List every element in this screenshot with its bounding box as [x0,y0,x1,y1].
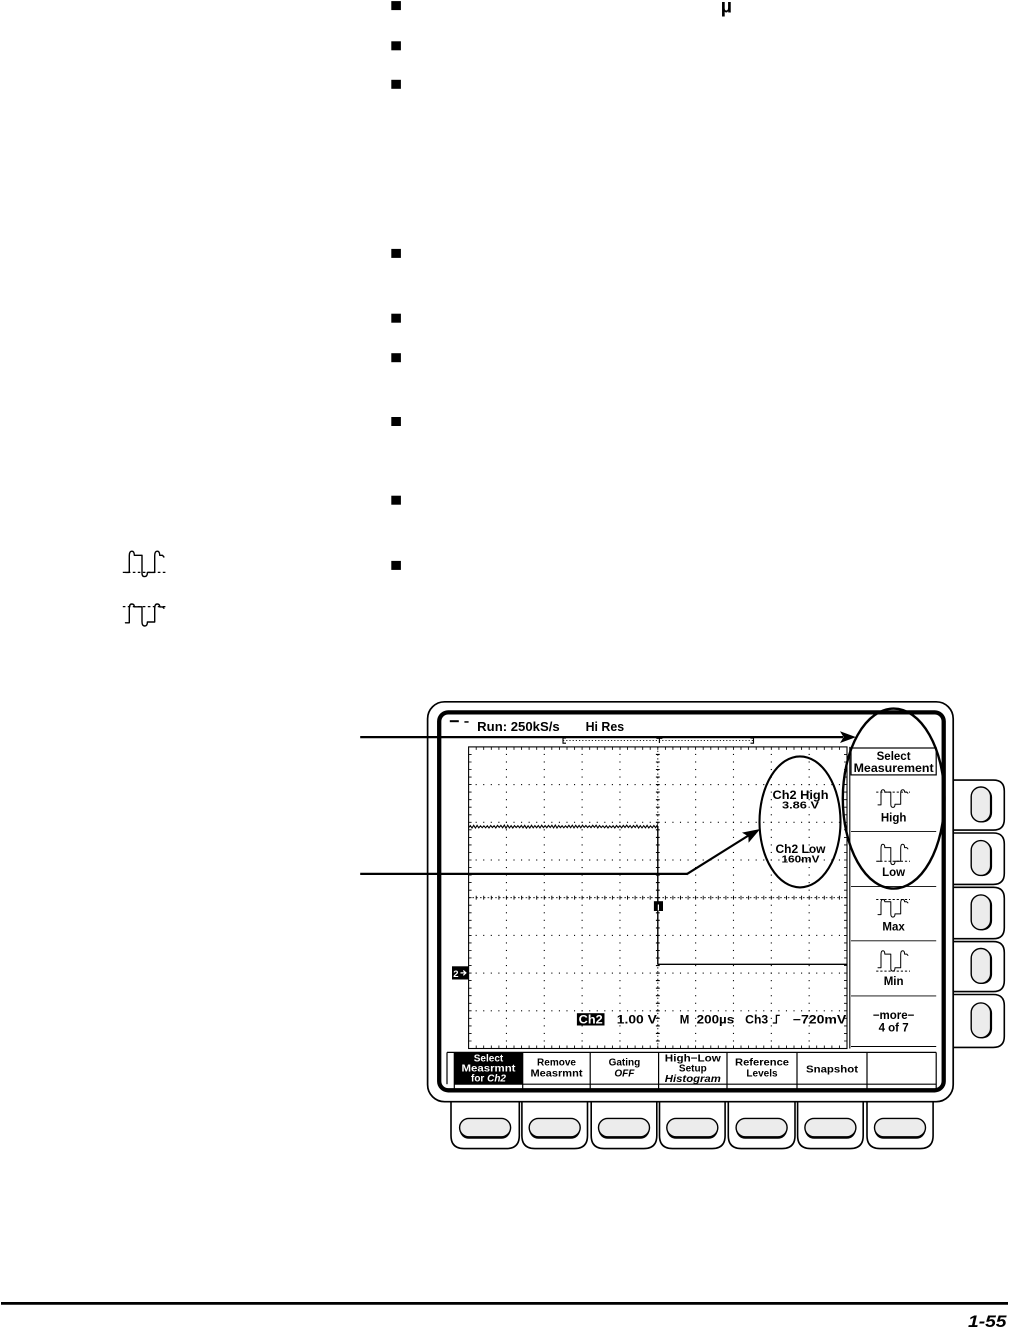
svg-text:M: M [680,1014,690,1026]
svg-text:200µs: 200µs [697,1014,735,1026]
svg-text:Max: Max [882,921,905,933]
svg-text:1.00 V: 1.00 V [617,1014,657,1026]
svg-text:3.86 V: 3.86 V [782,799,819,811]
svg-text:Measrmnt: Measrmnt [531,1068,584,1079]
svg-text:Ch2: Ch2 [579,1014,603,1026]
svg-text:µ: µ [721,0,732,17]
svg-text:Select: Select [877,751,911,763]
svg-text:4 of 7: 4 of 7 [879,1023,909,1035]
svg-text:High: High [881,813,907,825]
svg-text:160mV: 160mV [782,853,820,865]
svg-text:Histogram: Histogram [665,1074,721,1085]
svg-text:Reference: Reference [735,1057,789,1068]
svg-text:2: 2 [453,969,458,980]
svg-text:Measurement: Measurement [854,763,934,775]
svg-text:Run: 250kS/s: Run: 250kS/s [477,720,560,734]
svg-text:−more−: −more− [873,1010,915,1022]
svg-text:Snapshot: Snapshot [806,1064,859,1075]
svg-text:−720mV: −720mV [793,1014,847,1026]
svg-text:Ch3: Ch3 [745,1014,768,1026]
svg-text:Low: Low [882,867,905,879]
svg-text:OFF: OFF [614,1068,635,1079]
svg-text:Setup: Setup [679,1063,707,1074]
svg-text:for Ch2: for Ch2 [471,1074,506,1085]
svg-text:Levels: Levels [746,1068,778,1079]
svg-text:Hi Res: Hi Res [586,720,625,734]
svg-text:Min: Min [884,976,904,988]
svg-text:1-55: 1-55 [968,1312,1007,1329]
svg-text:Gating: Gating [609,1057,641,1068]
svg-text:Remove: Remove [537,1057,576,1068]
